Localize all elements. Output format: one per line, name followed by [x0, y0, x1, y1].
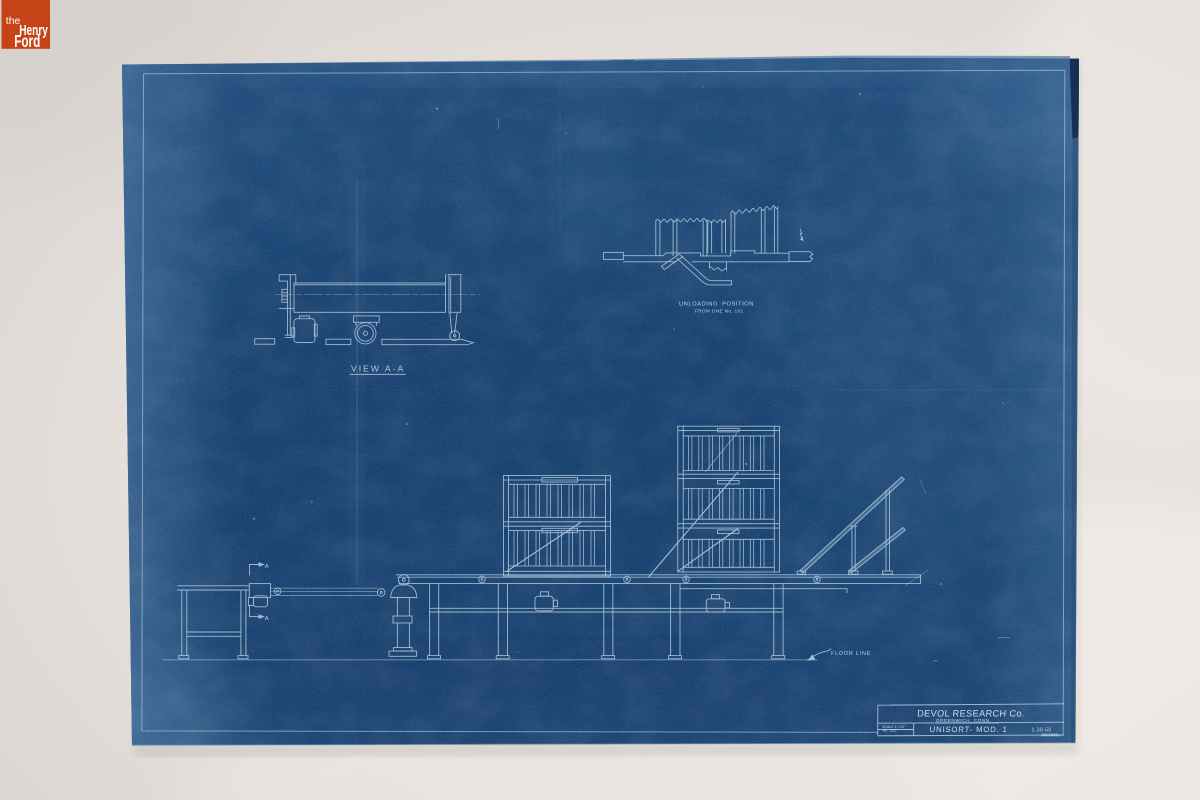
- svg-text:VIEW A-A: VIEW A-A: [351, 363, 405, 373]
- svg-text:A: A: [265, 564, 269, 570]
- svg-text:No. 1112: No. 1112: [883, 729, 897, 733]
- svg-text:Ford: Ford: [14, 33, 40, 52]
- svg-text:UNLOADING POSITION: UNLOADING POSITION: [679, 302, 754, 308]
- svg-text:A: A: [265, 616, 269, 622]
- svg-text:FROM ONE No. 101: FROM ONE No. 101: [695, 309, 744, 314]
- svg-text:UNISORT- MOD. 1: UNISORT- MOD. 1: [929, 725, 1008, 734]
- svg-text:the: the: [6, 15, 21, 27]
- svg-text:FLOOR LINE: FLOOR LINE: [831, 651, 871, 657]
- svg-text:GREENWICH, CONN.: GREENWICH, CONN.: [936, 718, 992, 723]
